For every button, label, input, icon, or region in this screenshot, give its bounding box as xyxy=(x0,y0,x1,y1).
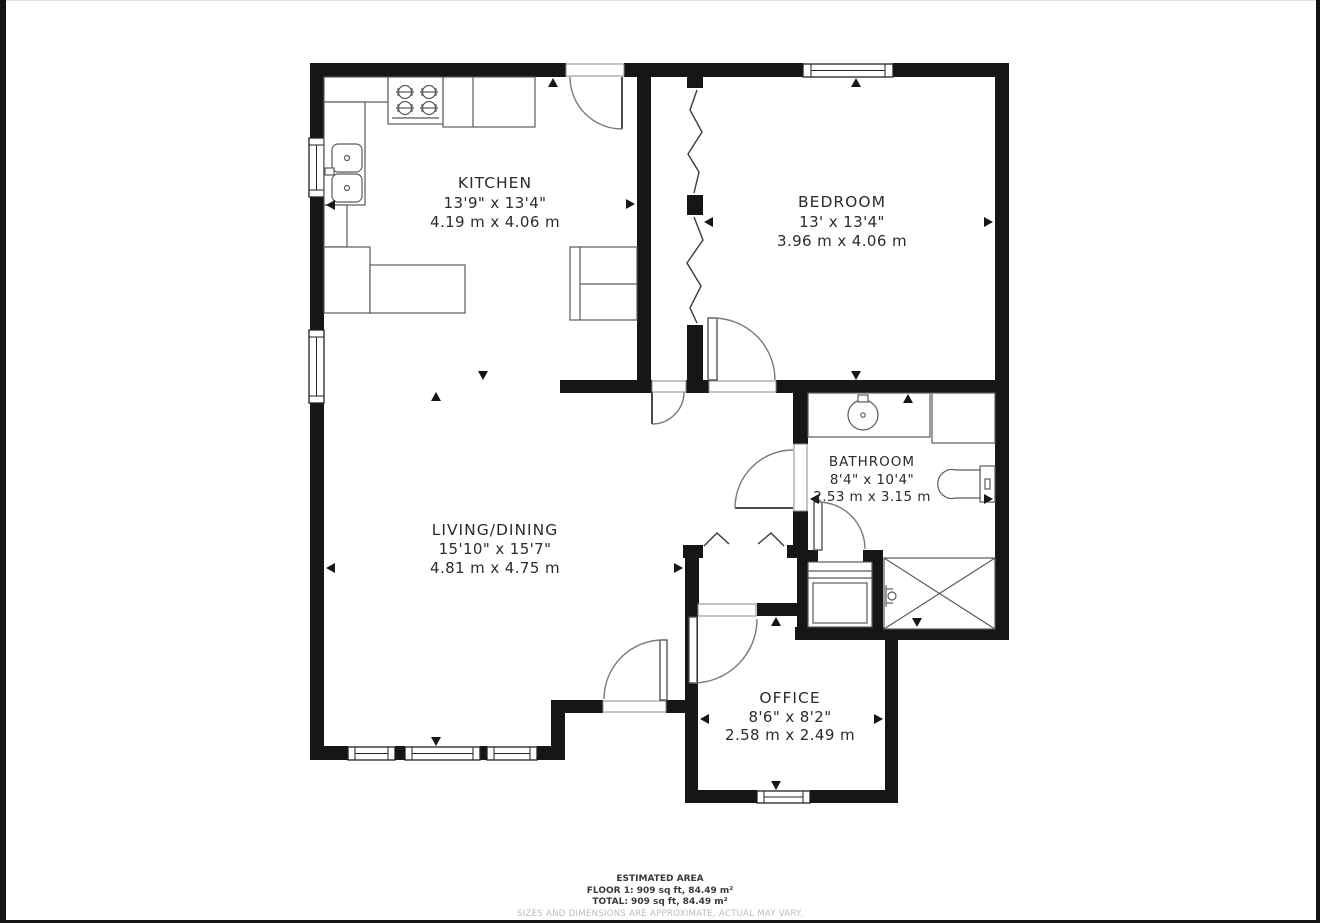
office-imperial: 8'6" x 8'2" xyxy=(748,708,831,726)
room-label-kitchen: KITCHEN 13'9" x 13'4" 4.19 m x 4.06 m xyxy=(430,174,560,231)
refrigerator-icon xyxy=(570,247,637,320)
floor-plan-page: KITCHEN 13'9" x 13'4" 4.19 m x 4.06 m BE… xyxy=(0,0,1320,923)
dimension-arrow-icon xyxy=(771,617,781,626)
shower-icon xyxy=(884,558,995,629)
hall-bathroom-door xyxy=(735,444,807,511)
office-name: OFFICE xyxy=(759,689,820,707)
bathroom-imperial: 8'4" x 10'4" xyxy=(830,472,914,488)
footer-floor-line: FLOOR 1: 909 sq ft, 84.49 m² xyxy=(0,886,1320,898)
dimension-arrow-icon xyxy=(674,563,683,573)
dimension-arrow-icon xyxy=(431,737,441,746)
office-door xyxy=(689,604,757,683)
hall-closet-door xyxy=(652,381,686,424)
bathroom-name: BATHROOM xyxy=(829,454,915,470)
bedroom-closet-break-1 xyxy=(688,90,702,193)
room-labels: KITCHEN 13'9" x 13'4" 4.19 m x 4.06 m BE… xyxy=(430,174,931,744)
bathroom-inner-door xyxy=(814,502,865,550)
bedroom-name: BEDROOM xyxy=(798,193,886,211)
bedroom-closet-break-2 xyxy=(687,217,703,323)
bedroom-metric: 3.96 m x 4.06 m xyxy=(777,232,907,250)
office-metric: 2.58 m x 2.49 m xyxy=(725,726,855,744)
dimension-arrow-icon xyxy=(851,78,861,87)
kitchen-peninsula xyxy=(370,265,465,313)
footer-title: ESTIMATED AREA xyxy=(0,874,1320,886)
dimension-arrow-icon xyxy=(984,217,993,227)
window-living-left xyxy=(309,330,324,403)
room-label-bedroom: BEDROOM 13' x 13'4" 3.96 m x 4.06 m xyxy=(777,193,907,250)
bathroom-counter xyxy=(808,393,930,437)
window-office-bottom xyxy=(757,791,810,803)
wall-break-symbols xyxy=(687,90,784,546)
estimated-area-footer: ESTIMATED AREA FLOOR 1: 909 sq ft, 84.49… xyxy=(0,874,1320,920)
window-kitchen-left xyxy=(309,138,324,197)
window-living-bottom-2 xyxy=(405,747,480,760)
bathroom-metric: 2.53 m x 3.15 m xyxy=(813,489,931,505)
footer-total-line: TOTAL: 909 sq ft, 84.49 m² xyxy=(0,897,1320,909)
kitchen-imperial: 13'9" x 13'4" xyxy=(444,194,547,212)
stove-icon xyxy=(388,77,443,124)
kitchen-metric: 4.19 m x 4.06 m xyxy=(430,213,560,231)
washer-icon xyxy=(808,562,872,627)
hall-opening-break-right xyxy=(758,533,784,546)
kitchen-counter-top-right xyxy=(443,77,535,127)
window-bedroom-top xyxy=(803,64,893,77)
hall-opening-break-left xyxy=(704,533,729,546)
dimension-arrow-icon xyxy=(874,714,883,724)
dimension-arrow-icon xyxy=(626,199,635,209)
kitchen-entry-door xyxy=(566,64,624,129)
window-living-bottom-1 xyxy=(348,747,395,760)
room-label-living: LIVING/DINING 15'10" x 15'7" 4.81 m x 4.… xyxy=(430,521,560,577)
dimension-arrow-icon xyxy=(431,392,441,401)
kitchen-counter-top-left xyxy=(324,77,388,102)
dimension-arrow-icon xyxy=(704,217,713,227)
living-name: LIVING/DINING xyxy=(432,521,559,539)
main-entry-door xyxy=(603,640,667,712)
kitchen-counter-mid xyxy=(324,205,347,247)
kitchen-counter-lower xyxy=(324,247,370,313)
floor-plan-drawing: KITCHEN 13'9" x 13'4" 4.19 m x 4.06 m BE… xyxy=(0,0,1320,870)
bathroom-fixtures xyxy=(808,393,995,629)
dimension-arrow-icon xyxy=(326,563,335,573)
room-label-bathroom: BATHROOM 8'4" x 10'4" 2.53 m x 3.15 m xyxy=(813,454,931,505)
bedroom-imperial: 13' x 13'4" xyxy=(799,213,885,231)
kitchen-name: KITCHEN xyxy=(458,174,532,192)
dimension-arrow-icon xyxy=(548,78,558,87)
bedroom-door xyxy=(708,318,776,392)
dimension-arrow-icon xyxy=(851,371,861,380)
living-imperial: 15'10" x 15'7" xyxy=(439,540,552,558)
window-living-bottom-3 xyxy=(487,747,537,760)
living-metric: 4.81 m x 4.75 m xyxy=(430,559,560,577)
footer-disclaimer: SIZES AND DIMENSIONS ARE APPROXIMATE, AC… xyxy=(0,909,1320,921)
dimension-arrow-icon xyxy=(771,781,781,790)
vanity-cabinet-icon xyxy=(932,393,995,443)
room-label-office: OFFICE 8'6" x 8'2" 2.58 m x 2.49 m xyxy=(725,689,855,744)
dimension-arrow-icon xyxy=(700,714,709,724)
dimension-arrow-icon xyxy=(478,371,488,380)
